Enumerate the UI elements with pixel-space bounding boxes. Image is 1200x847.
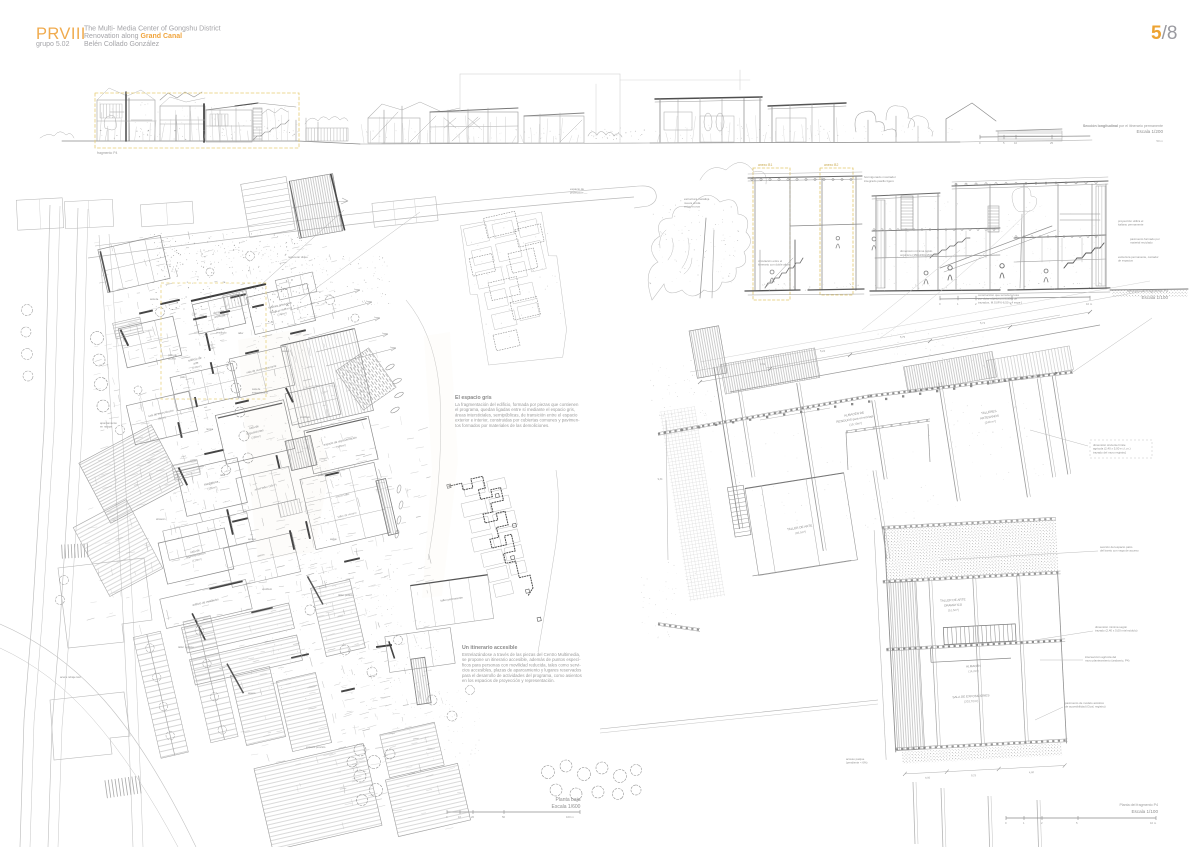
svg-text:Escala 1/100: Escala 1/100	[1131, 809, 1158, 814]
svg-text:50: 50	[502, 815, 506, 819]
svg-text:fragmento P4: fragmento P4	[97, 151, 117, 155]
svg-text:5,75: 5,75	[900, 335, 906, 339]
svg-text:9,34: 9,34	[658, 478, 663, 481]
svg-text:sala de: sala de	[252, 387, 261, 391]
svg-text:de accesibilidad (Goal, reg: de accesibilidad (Goal, registro)	[1065, 705, 1106, 709]
svg-text:en los espacios de proyección: en los espacios de proyección y represen…	[462, 678, 555, 683]
svg-text:Escala 1/200: Escala 1/200	[1136, 129, 1163, 134]
svg-text:10: 10	[1014, 141, 1018, 145]
svg-text:orgánico (150x150x150mm): orgánico (150x150x150mm)	[900, 253, 937, 257]
svg-text:5/8: 5/8	[1151, 23, 1177, 44]
svg-text:itinerario con doble altura: itinerario con doble altura	[758, 263, 791, 267]
svg-text:almacén: almacén	[156, 518, 166, 521]
svg-text:Un itinerario accesible: Un itinerario accesible	[462, 645, 517, 651]
svg-text:espacio previsto: espacio previsto	[306, 745, 326, 749]
svg-text:10 m: 10 m	[1150, 821, 1157, 825]
svg-text:integrado pasillo ligero: integrado pasillo ligero	[864, 179, 894, 183]
svg-text:100 m: 100 m	[566, 815, 574, 819]
svg-text:7,94: 7,94	[776, 412, 781, 415]
svg-text:exposiciones): exposiciones)	[252, 390, 268, 394]
svg-text:aseos: aseos	[248, 691, 256, 695]
svg-text:taller público: taller público	[338, 593, 354, 597]
svg-text:Sección longitudinal por el it: Sección longitudinal por el itinerario p…	[1083, 124, 1163, 128]
svg-text:vestíbulo: vestíbulo	[216, 330, 227, 334]
svg-text:Sección del fragmento P4: Sección del fragmento P4	[1127, 289, 1168, 293]
svg-text:regenerar dique: regenerar dique	[288, 255, 308, 259]
svg-text:10 m: 10 m	[1086, 302, 1093, 306]
svg-text:aula de: aula de	[150, 298, 159, 301]
svg-text:protección __: protección __	[570, 191, 588, 195]
svg-text:Planta baja: Planta baja	[555, 797, 580, 803]
svg-text:aseos: aseos	[330, 538, 337, 541]
svg-text:6,00: 6,00	[925, 776, 931, 780]
svg-text:acceso: acceso	[168, 357, 177, 360]
svg-text:50 m: 50 m	[1156, 139, 1163, 143]
svg-text:8,25: 8,25	[971, 773, 977, 777]
svg-text:aseos: aseos	[282, 350, 289, 353]
svg-text:anexo B2: anexo B2	[824, 163, 838, 167]
svg-text:4,60: 4,60	[1029, 770, 1035, 774]
svg-text:(51,5m²): (51,5m²)	[948, 608, 959, 613]
svg-text:entre muros: entre muros	[684, 205, 701, 209]
svg-text:ALMACÉN: ALMACÉN	[966, 663, 981, 669]
svg-text:Renovation along Grand Canal: Renovation along Grand Canal	[84, 33, 182, 40]
svg-text:trazados, M.SUP.6-6,50 x 4 es: trazados, M.SUP.6-6,50 x 4 espa-]	[978, 300, 1022, 304]
svg-text:acceso: acceso	[248, 538, 257, 541]
svg-text:(14,2m²): (14,2m²)	[968, 669, 979, 674]
svg-text:taller: taller	[238, 332, 244, 335]
svg-text:(203,70m²): (203,70m²)	[964, 699, 978, 704]
svg-text:El espacio gris: El espacio gris	[455, 395, 492, 401]
svg-text:muro planteamiento (andamio,: muro planteamiento (andamio, P4)	[1085, 659, 1130, 663]
svg-text:en rampa: en rampa	[100, 425, 112, 429]
svg-text:taller: taller	[220, 474, 226, 477]
svg-text:Escala 1/100: Escala 1/100	[1141, 295, 1168, 300]
svg-text:4,75: 4,75	[806, 408, 811, 411]
svg-text:taller público: taller público	[178, 645, 194, 649]
svg-text:anexo B1: anexo B1	[758, 163, 772, 167]
svg-text:material reciclado: material reciclado	[1130, 241, 1153, 245]
svg-text:tos formados por materiales de: tos formados por materiales de las demol…	[455, 423, 549, 428]
svg-text:vestíbulo: vestíbulo	[262, 588, 273, 591]
svg-text:patio: patio	[318, 474, 324, 477]
svg-text:trazado del muro registro]: trazado del muro registro]	[1093, 450, 1126, 454]
svg-text:Escala 1/600: Escala 1/600	[552, 804, 581, 810]
svg-text:del barrio con vega de acce: del barrio con vega de acceso	[1100, 549, 1139, 553]
svg-text:The Multi- Media Center of Gon: The Multi- Media Center of Gongshu Distr…	[84, 26, 221, 33]
svg-text:grupo 5.02: grupo 5.02	[36, 41, 70, 48]
svg-text:Belén Collado González: Belén Collado González	[84, 41, 160, 48]
svg-text:acera rebaje taxi: acera rebaje taxi	[60, 675, 81, 679]
svg-text:5,24: 5,24	[820, 349, 826, 353]
svg-text:25: 25	[1050, 141, 1054, 145]
svg-text:patio: patio	[180, 375, 186, 379]
svg-text:20: 20	[471, 815, 475, 819]
svg-text:rampa: rampa	[206, 428, 214, 431]
svg-text:trazado (2,40 x 5,00 mts/módu: trazado (2,40 x 5,00 mts/módulo)	[1095, 629, 1137, 633]
svg-text:Planta del fragmento P4: Planta del fragmento P4	[1119, 803, 1158, 807]
svg-text:5,74: 5,74	[980, 321, 986, 325]
svg-text:(pendiente < 6%): (pendiente < 6%)	[846, 761, 867, 765]
svg-text:italiano permanente: italiano permanente	[1118, 223, 1144, 227]
svg-text:vestíbulo: vestíbulo	[300, 416, 311, 419]
svg-text:de espacios: de espacios	[1118, 259, 1134, 263]
